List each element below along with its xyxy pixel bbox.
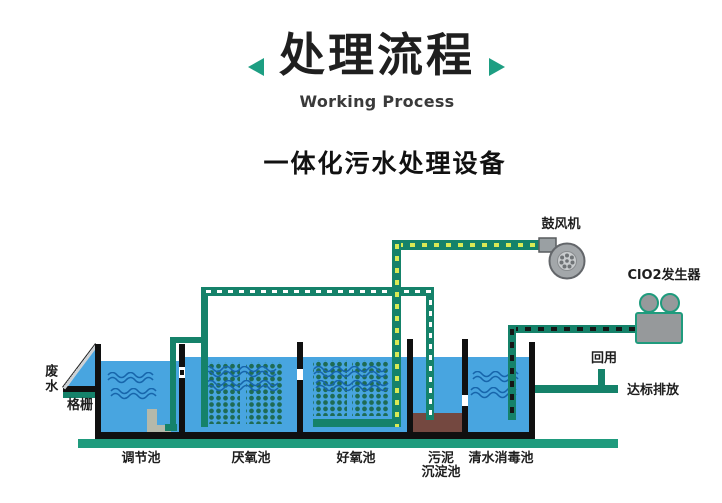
- blower-air-downpipe: [392, 240, 401, 427]
- wave-icon: [313, 366, 391, 378]
- sedimentation-tank-water: [413, 357, 462, 413]
- clo2-dosing-pipe: [508, 325, 638, 333]
- blower-air-pipe: [392, 240, 547, 250]
- tank-label-sludge-line2: 沉淀池: [421, 466, 460, 480]
- tank-wall-divider1: [179, 378, 185, 439]
- wastewater-label: 废水: [42, 364, 56, 394]
- sludge-layer: [413, 413, 462, 432]
- tank-wall-divider1: [179, 344, 185, 367]
- clo2-generator-icon: [660, 293, 680, 313]
- tank-floor: [97, 432, 535, 439]
- tank-wall-divider3: [407, 339, 413, 439]
- tank-wall-divider2: [297, 342, 303, 369]
- tank-label-aerobic: 好氧池: [336, 452, 375, 466]
- tank-label-anaerobic: 厌氧池: [231, 452, 270, 466]
- title-right-triangle-icon: [489, 58, 505, 76]
- wave-icon: [110, 388, 158, 400]
- page-title: 处理流程: [279, 30, 475, 81]
- aeration-header: [313, 419, 401, 427]
- clo2-dosing-downpipe: [508, 325, 516, 420]
- tank-label-disinfection: 清水消毒池: [468, 452, 533, 466]
- outlet-pipe: [535, 385, 618, 393]
- page-subtitle-en: Working Process: [300, 92, 455, 111]
- wave-icon: [107, 372, 155, 384]
- wave-icon: [203, 366, 281, 378]
- wave-icon: [315, 380, 393, 392]
- device-heading: 一体化污水处理设备: [263, 144, 506, 180]
- equipment-base: [78, 439, 618, 448]
- transfer-pipe: [170, 337, 176, 429]
- process-diagram: 废水 格栅 调节池 厌氧池 好氧池 污泥 沉淀池 清水消毒池 鼓风机 ClO2发…: [0, 200, 722, 503]
- wall-port: [180, 370, 184, 375]
- return-drop-pipe: [201, 287, 208, 427]
- discharge-label: 达标排放: [627, 384, 679, 398]
- tank-wall-divider2: [297, 380, 303, 439]
- sludge-return-riser: [426, 296, 434, 420]
- tank-wall-left: [95, 344, 101, 439]
- clo2-generator-label: ClO2发生器: [627, 269, 700, 283]
- reuse-branch-pipe: [598, 369, 605, 386]
- blower-label: 鼓风机: [541, 218, 580, 232]
- tank-wall-divider4: [462, 339, 468, 395]
- blower-icon: [536, 233, 590, 283]
- wave-icon: [205, 380, 283, 392]
- title-left-triangle-icon: [248, 58, 264, 76]
- reuse-label: 回用: [591, 352, 617, 366]
- working-process-poster: 处理流程 Working Process 一体化污水处理设备: [0, 0, 722, 503]
- tank-label-regulation: 调节池: [121, 452, 160, 466]
- tank-label-sludge: 污泥 沉淀池: [421, 452, 460, 481]
- clo2-generator-icon: [639, 293, 659, 313]
- clo2-generator-icon: [635, 312, 683, 344]
- screen-label: 格栅: [67, 399, 93, 413]
